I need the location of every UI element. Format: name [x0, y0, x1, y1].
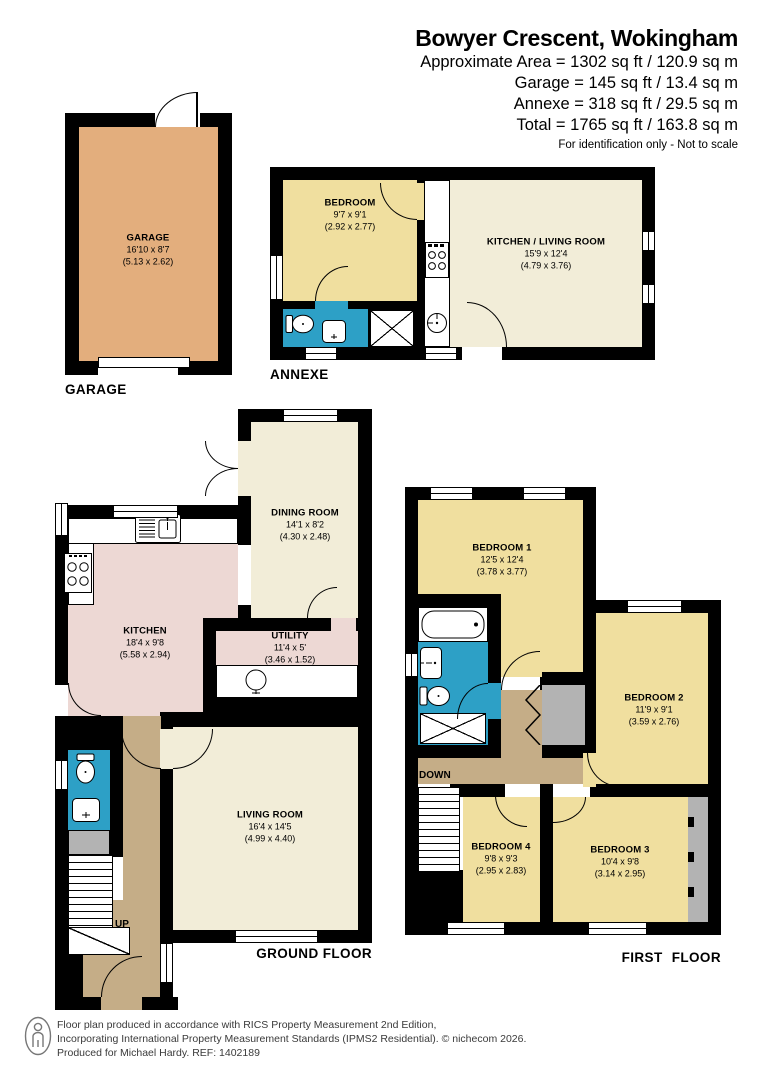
room-label-bedroom2: BEDROOM 2 11'9 x 9'1 (3.59 x 2.76): [624, 693, 683, 728]
room-label-annexe-bedroom: BEDROOM 9'7 x 9'1 (2.92 x 2.77): [324, 198, 375, 233]
window: [642, 231, 655, 251]
bifold-door: [524, 685, 542, 745]
basin-icon: [420, 647, 442, 679]
window: [642, 284, 655, 304]
basin-icon: [322, 320, 346, 343]
sink-icon: [426, 311, 448, 335]
window: [305, 347, 337, 360]
window: [627, 600, 682, 613]
wall: [405, 487, 418, 885]
page-title: Bowyer Crescent, Wokingham: [415, 24, 738, 52]
door-opening: [123, 716, 161, 729]
french-door-opening: [238, 441, 251, 496]
kitchen-sink-icon: [135, 514, 181, 543]
room-label-kitchen: KITCHEN 18'4 x 9'8 (5.58 x 2.94): [120, 626, 171, 661]
door-arc: [205, 441, 238, 469]
footer-line: Incorporating International Property Mea…: [57, 1032, 677, 1046]
room-label-living: LIVING ROOM 16'4 x 14'5 (4.99 x 4.40): [237, 810, 303, 845]
wall: [238, 422, 251, 441]
opening: [238, 545, 251, 605]
stairs-down: [418, 787, 460, 872]
header: Bowyer Crescent, Wokingham Approximate A…: [415, 24, 738, 151]
garage-door: [98, 357, 190, 368]
hob-icon: [64, 553, 92, 593]
wall: [203, 698, 372, 712]
area-line-approximate: Approximate Area = 1302 sq ft / 120.9 sq…: [415, 52, 738, 73]
stairs-direction-label: UP: [115, 919, 129, 930]
first-floor-plan: DOWN BEDROOM 1 12'5 x 12'4 (3.78 x 3.77)…: [405, 487, 740, 982]
oven-hob-icon: [425, 242, 449, 278]
door-opening: [55, 685, 68, 716]
wall: [283, 301, 417, 309]
window: [160, 943, 173, 983]
room-label-bedroom4: BEDROOM 4 9'8 x 9'3 (2.95 x 2.83): [471, 842, 530, 877]
front-door-opening: [101, 997, 142, 1010]
window: [523, 487, 566, 500]
stairs-direction-label: DOWN: [419, 770, 451, 781]
door-leaf: [196, 92, 198, 127]
door-opening: [315, 301, 348, 309]
shower: [370, 310, 414, 347]
room-label-bedroom3: BEDROOM 3 10'4 x 9'8 (3.14 x 2.95): [590, 845, 649, 880]
toilet-icon: [74, 753, 98, 785]
garage-plan: GARAGE 16'10 x 8'7 (5.13 x 2.62) GARAGE: [65, 88, 305, 418]
bathtub-icon: [418, 607, 488, 642]
wall: [110, 745, 123, 857]
wall: [585, 685, 596, 745]
window: [113, 505, 178, 518]
door-opening: [462, 347, 502, 360]
wall: [405, 594, 501, 607]
utility-sink-icon: [243, 668, 269, 696]
door-opening: [331, 618, 356, 631]
area-line-annexe: Annexe = 318 sq ft / 29.5 sq m: [415, 94, 738, 115]
wall: [488, 594, 501, 752]
area-line-total: Total = 1765 sq ft / 163.8 sq m: [415, 115, 738, 136]
window: [405, 653, 418, 677]
stairs-winder: [68, 927, 130, 955]
disclaimer-text: For identification only - Not to scale: [415, 139, 738, 151]
window: [425, 347, 457, 360]
wall: [358, 409, 372, 943]
wall: [590, 784, 721, 797]
basin-icon: [72, 798, 100, 822]
door-opening: [488, 683, 501, 719]
window: [270, 255, 283, 300]
footer-line: Produced for Michael Hardy. REF: 1402189: [57, 1046, 677, 1060]
door-opening: [160, 729, 173, 769]
wall: [688, 817, 694, 827]
nichecom-logo-icon: [24, 1016, 52, 1056]
plan-label-first-floor: FIRST FLOOR: [590, 950, 721, 965]
stairs-up: [68, 855, 113, 929]
door-arc: [205, 468, 238, 496]
window: [55, 503, 68, 536]
footer-line: Floor plan produced in accordance with R…: [57, 1018, 677, 1032]
room-label-dining: DINING ROOM 14'1 x 8'2 (4.30 x 2.48): [271, 508, 339, 543]
plan-label-annexe: ANNEXE: [270, 367, 329, 382]
room-label-annexe-kitchen-living: KITCHEN / LIVING ROOM 15'9 x 12'4 (4.79 …: [487, 237, 605, 272]
door-opening: [417, 183, 424, 220]
footer-text: Floor plan produced in accordance with R…: [57, 1018, 677, 1060]
window: [588, 922, 647, 935]
wall: [708, 600, 721, 935]
toilet-icon: [285, 313, 315, 335]
cupboard: [542, 685, 585, 745]
room-label-bedroom1: BEDROOM 1 12'5 x 12'4 (3.78 x 3.77): [472, 543, 531, 578]
window: [447, 922, 505, 935]
wall: [688, 852, 694, 862]
plan-label-ground-floor: GROUND FLOOR: [229, 946, 372, 961]
room-label-utility: UTILITY 11'4 x 5' (3.46 x 1.52): [265, 631, 316, 666]
wall: [542, 672, 596, 685]
window: [55, 760, 68, 790]
wall: [160, 712, 372, 727]
wall: [405, 745, 501, 758]
ground-floor-plan: UP DINING ROOM 14'1 x 8'2 (4.30 x 2.48) …: [55, 405, 390, 1017]
room-label-garage: GARAGE 16'10 x 8'7 (5.13 x 2.62): [123, 233, 174, 268]
window: [283, 409, 338, 422]
door-arc: [155, 92, 198, 127]
window: [235, 930, 318, 943]
toilet-icon: [419, 684, 451, 708]
wall: [688, 887, 694, 897]
wall: [540, 784, 553, 935]
plan-label-garage: GARAGE: [65, 382, 127, 397]
window: [430, 487, 473, 500]
wall: [583, 487, 596, 685]
annexe-plan: BEDROOM 9'7 x 9'1 (2.92 x 2.77) KITCHEN …: [270, 167, 660, 392]
floorplan-page: Bowyer Crescent, Wokingham Approximate A…: [0, 0, 764, 1080]
wall: [55, 947, 83, 1010]
area-line-garage: Garage = 145 sq ft / 13.4 sq m: [415, 73, 738, 94]
understairs-cupboard: [68, 830, 110, 855]
utility-counter: [216, 665, 358, 698]
